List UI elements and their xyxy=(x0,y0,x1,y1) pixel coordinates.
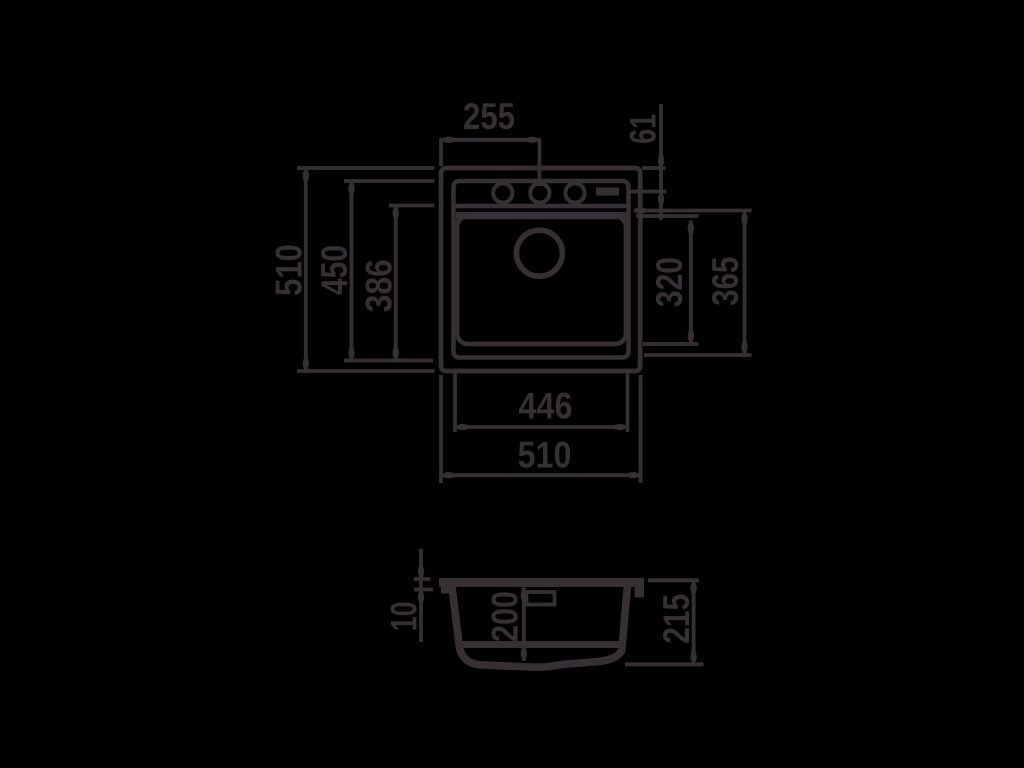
svg-text:446: 446 xyxy=(519,385,573,426)
svg-text:365: 365 xyxy=(705,257,746,306)
svg-text:200: 200 xyxy=(485,591,526,642)
svg-text:255: 255 xyxy=(463,96,515,137)
svg-text:61: 61 xyxy=(623,114,664,144)
svg-text:510: 510 xyxy=(269,244,310,296)
svg-text:450: 450 xyxy=(314,245,355,295)
svg-text:386: 386 xyxy=(358,259,399,312)
svg-text:510: 510 xyxy=(518,434,572,475)
svg-text:215: 215 xyxy=(656,594,697,644)
svg-text:10: 10 xyxy=(383,601,424,631)
svg-text:320: 320 xyxy=(649,257,690,307)
